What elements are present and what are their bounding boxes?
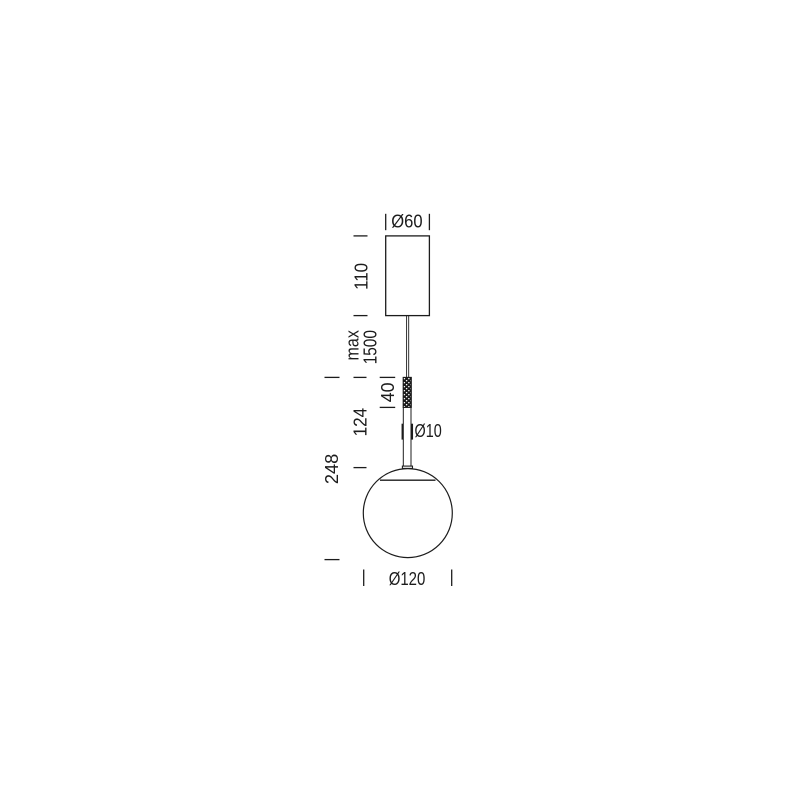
svg-text:124: 124 (350, 408, 370, 437)
svg-text:110: 110 (351, 263, 371, 290)
svg-text:248: 248 (322, 454, 342, 484)
svg-text:max: max (342, 330, 362, 360)
svg-text:Ø10: Ø10 (415, 421, 442, 441)
svg-text:Ø60: Ø60 (391, 211, 422, 231)
svg-text:1500: 1500 (361, 330, 381, 364)
svg-text:40: 40 (378, 383, 398, 403)
svg-text:Ø120: Ø120 (389, 569, 426, 589)
